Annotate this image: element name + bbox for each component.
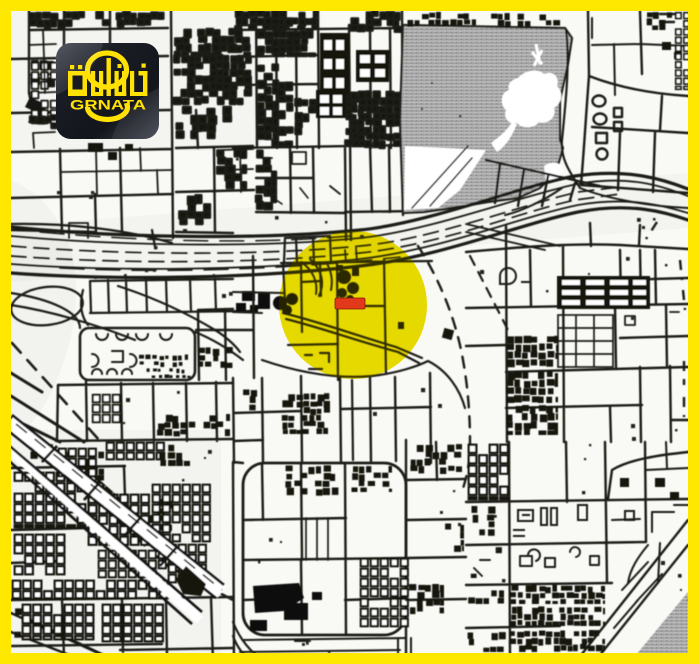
svg-text:GRNATA: GRNATA xyxy=(70,97,146,113)
